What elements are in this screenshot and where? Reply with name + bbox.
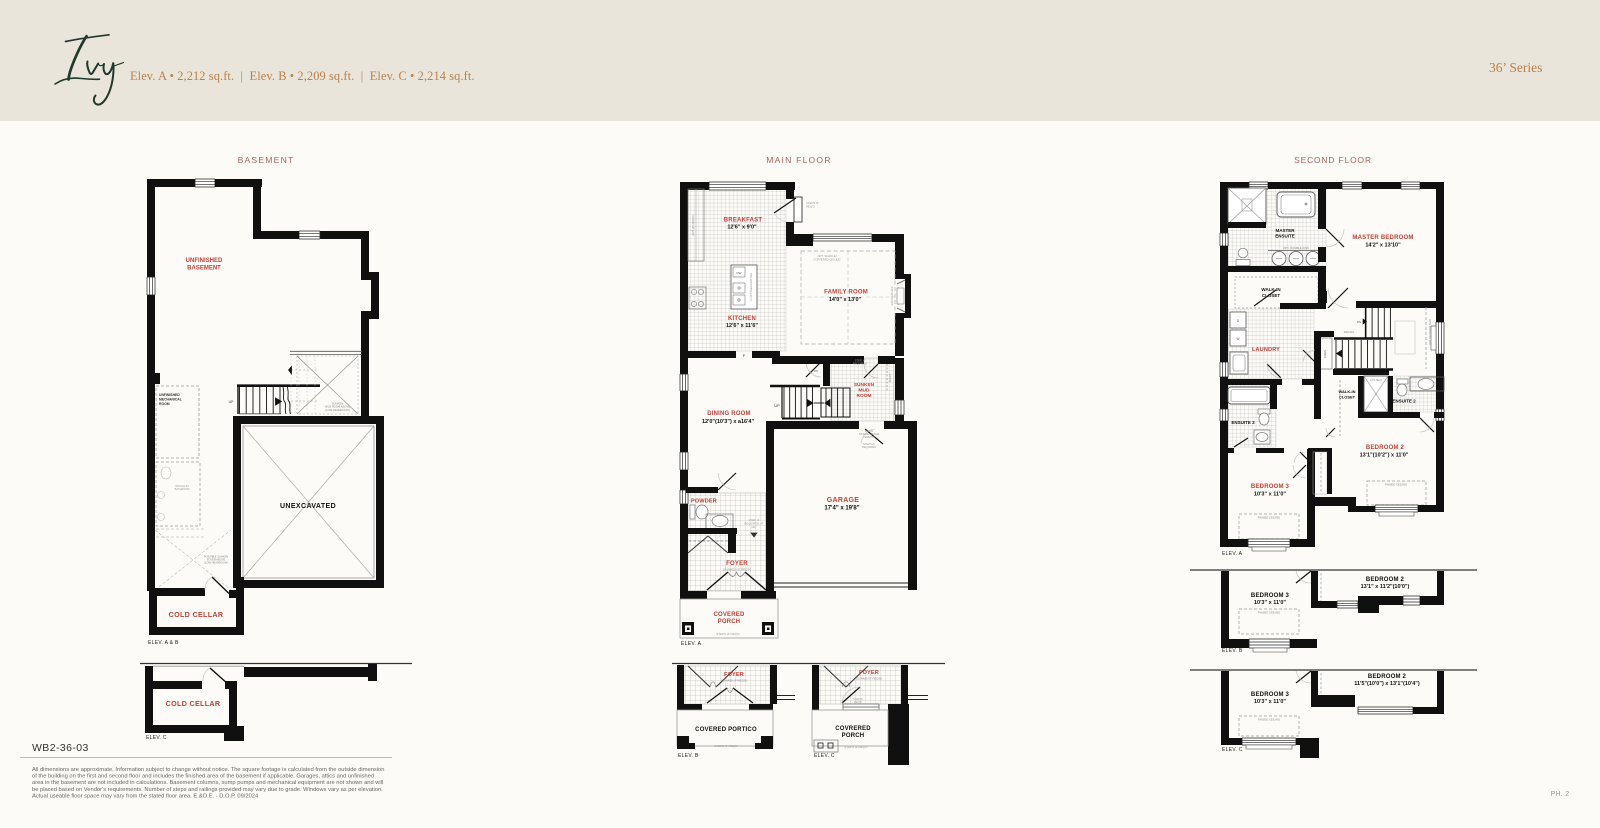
svg-text:PH. 2: PH. 2 (1550, 791, 1569, 798)
svg-text:ELEV. B: ELEV. B (1222, 648, 1243, 654)
svg-text:FOYER: FOYER (859, 670, 879, 676)
svg-text:RAISED CEILING: RAISED CEILING (1258, 516, 1280, 520)
svg-text:W: W (1236, 337, 1239, 341)
svg-text:OPT. BEDROOM SEAT: OPT. BEDROOM SEAT (1429, 318, 1432, 345)
svg-text:WALK-IN: WALK-IN (1338, 389, 1355, 394)
svg-text:14'0" x 13'0": 14'0" x 13'0" (829, 297, 862, 303)
svg-text:REQUIRED: REQUIRED (853, 362, 867, 366)
svg-text:ELEV. C: ELEV. C (814, 753, 835, 759)
svg-text:COVERED PORTICO: COVERED PORTICO (695, 727, 757, 733)
svg-text:OPT. DOUBLE SINK: OPT. DOUBLE SINK (1283, 246, 1309, 250)
svg-text:17'4" x 19'8": 17'4" x 19'8" (824, 506, 859, 512)
svg-text:F: F (743, 353, 746, 358)
svg-text:MAIN FLOOR: MAIN FLOOR (766, 155, 831, 165)
svg-text:MASTER: MASTER (1276, 228, 1296, 233)
svg-text:BASEMENT: BASEMENT (238, 155, 295, 165)
svg-text:UP: UP (229, 400, 234, 404)
svg-text:UP: UP (774, 404, 780, 408)
svg-text:BEDROOM 2: BEDROOM 2 (1366, 445, 1405, 451)
svg-text:UNFINISHED: UNFINISHED (186, 258, 223, 264)
svg-text:BEDROOM 3: BEDROOM 3 (1251, 593, 1290, 599)
svg-text:FOYER: FOYER (726, 561, 748, 567)
svg-text:DN: DN (814, 369, 818, 373)
svg-text:SECOND FLOOR: SECOND FLOOR (1294, 155, 1372, 165)
svg-text:GR.: GR. (752, 525, 757, 529)
svg-text:COVERED: COVERED (713, 612, 745, 618)
svg-text:Actual useable floor space may: Actual useable floor space may vary from… (32, 793, 259, 799)
svg-text:PERMITS: PERMITS (863, 435, 875, 439)
svg-text:of the building on the first a: of the building on the first and second … (32, 774, 374, 780)
svg-text:ELEV. C: ELEV. C (1222, 747, 1243, 753)
svg-text:RAISED CEILING: RAISED CEILING (1258, 718, 1280, 722)
svg-text:13'1"(10'2") x 11'0": 13'1"(10'2") x 11'0" (1360, 453, 1409, 459)
svg-text:(LOW HEADROOM): (LOW HEADROOM) (325, 408, 350, 412)
svg-text:ENSUITE 2: ENSUITE 2 (1392, 399, 1416, 404)
svg-text:BATHROOM: BATHROOM (175, 487, 190, 491)
svg-text:REQ'D: REQ'D (806, 205, 815, 209)
svg-text:ROOM: ROOM (159, 402, 170, 406)
svg-text:STEPS IF REQ'D: STEPS IF REQ'D (844, 745, 868, 749)
svg-text:(LOW HEADROOM): (LOW HEADROOM) (204, 561, 228, 565)
svg-text:UNFINISHED: UNFINISHED (159, 393, 180, 397)
svg-text:ELEV. A & B: ELEV. A & B (148, 640, 179, 646)
svg-text:PORCH: PORCH (842, 733, 865, 739)
svg-text:BEDROOM 2: BEDROOM 2 (1368, 674, 1407, 680)
svg-text:(SUNKEN IF REQ'D): (SUNKEN IF REQ'D) (856, 677, 882, 681)
svg-text:area in the basement are not i: area in the basement are not included in… (32, 780, 383, 786)
svg-text:BEDROOM 2: BEDROOM 2 (1366, 577, 1405, 583)
svg-text:POWDER: POWDER (691, 499, 717, 505)
svg-text:DW: DW (737, 271, 742, 275)
svg-text:COVRERED: COVRERED (835, 726, 871, 732)
svg-text:12'0"(10'3") x a16'4": 12'0"(10'3") x a16'4" (702, 419, 755, 425)
svg-text:ELEV. C: ELEV. C (146, 735, 167, 741)
svg-text:be placed based on Vendor's re: be placed based on Vendor's requirements… (32, 787, 383, 793)
svg-text:WB2-36-03: WB2-36-03 (32, 742, 89, 754)
svg-text:FAMILY ROOM: FAMILY ROOM (824, 290, 868, 296)
svg-text:(OPT. W/I PANTRY): (OPT. W/I PANTRY) (692, 214, 695, 235)
svg-text:(SUNKEN IF REQ'D): (SUNKEN IF REQ'D) (723, 568, 751, 572)
svg-text:BENCH: BENCH (889, 374, 892, 383)
svg-text:MASTER BEDROOM: MASTER BEDROOM (1352, 235, 1413, 241)
svg-text:STEPS IF REQ'D: STEPS IF REQ'D (716, 632, 740, 636)
svg-text:BEDROOM 3: BEDROOM 3 (1251, 692, 1290, 698)
svg-text:All dimensions are approximate: All dimensions are approximate. Informat… (32, 767, 384, 773)
svg-text:ENSUITE: ENSUITE (1275, 234, 1295, 239)
svg-text:ENSUITE 3: ENSUITE 3 (1231, 420, 1255, 425)
svg-text:ELEV. B: ELEV. B (678, 753, 699, 759)
svg-text:ROOM: ROOM (857, 393, 872, 399)
svg-text:CLOSET: CLOSET (1339, 395, 1356, 400)
svg-text:COLD CELLAR: COLD CELLAR (169, 610, 224, 619)
svg-text:REQ'D: REQ'D (854, 701, 862, 704)
svg-text:COFFERED CEILING: COFFERED CEILING (813, 258, 840, 262)
svg-text:STEPS IF REQ'D: STEPS IF REQ'D (714, 744, 738, 748)
svg-text:REQUIRED: REQUIRED (862, 445, 876, 449)
svg-text:DINING ROOM: DINING ROOM (707, 411, 751, 417)
svg-text:BREAKFAST: BREAKFAST (724, 218, 763, 224)
svg-text:RAISED CEILING: RAISED CEILING (1385, 483, 1407, 487)
svg-text:LAUNDRY: LAUNDRY (1252, 347, 1280, 353)
svg-text:10'3" x 11'0": 10'3" x 11'0" (1254, 492, 1286, 498)
svg-text:LINEN: LINEN (1323, 350, 1327, 358)
svg-text:MECHANICAL: MECHANICAL (159, 398, 182, 402)
svg-text:WALK-IN: WALK-IN (1261, 287, 1280, 292)
svg-text:ELEV. A: ELEV. A (1222, 551, 1243, 557)
svg-text:ELEV. A: ELEV. A (681, 641, 702, 647)
svg-text:13'1" x 11'2"(10'0"): 13'1" x 11'2"(10'0") (1361, 584, 1410, 590)
svg-text:12'6" x 11'6": 12'6" x 11'6" (726, 323, 758, 329)
svg-text:14'2" x 13'10": 14'2" x 13'10" (1365, 243, 1401, 249)
svg-text:PORCH: PORCH (718, 619, 741, 625)
svg-text:SUNKEN: SUNKEN (854, 382, 875, 388)
svg-text:COLD CELLAR: COLD CELLAR (166, 699, 221, 708)
svg-text:RAISED CEILING: RAISED CEILING (1258, 611, 1280, 615)
svg-text:RAILING: RAILING (1344, 330, 1354, 334)
svg-text:FOYER: FOYER (724, 672, 744, 678)
svg-text:BASEMENT: BASEMENT (187, 266, 221, 272)
svg-text:FLUSH BREAKFAST BAR: FLUSH BREAKFAST BAR (750, 273, 753, 301)
svg-text:MUD: MUD (859, 388, 870, 394)
svg-text:(SUNKEN IF REQ'D): (SUNKEN IF REQ'D) (721, 679, 747, 683)
svg-text:11'5"(10'0") x 13'1"(10'4"): 11'5"(10'0") x 13'1"(10'4") (1354, 681, 1420, 687)
svg-text:12'6" x 9'0": 12'6" x 9'0" (727, 225, 757, 231)
svg-text:GARAGE: GARAGE (827, 497, 860, 504)
svg-text:UNEXCAVATED: UNEXCAVATED (280, 503, 336, 510)
svg-text:10'3" x 11'0": 10'3" x 11'0" (1254, 600, 1286, 606)
svg-text:10'3" x 11'0": 10'3" x 11'0" (1254, 699, 1286, 705)
svg-text:BEDROOM 3: BEDROOM 3 (1251, 484, 1290, 490)
svg-text:GAS FIREPLACE: GAS FIREPLACE (891, 286, 894, 305)
svg-text:DN: DN (1357, 320, 1361, 324)
svg-text:OPT. SEAT: OPT. SEAT (1370, 379, 1383, 382)
svg-text:KITCHEN: KITCHEN (728, 316, 756, 322)
